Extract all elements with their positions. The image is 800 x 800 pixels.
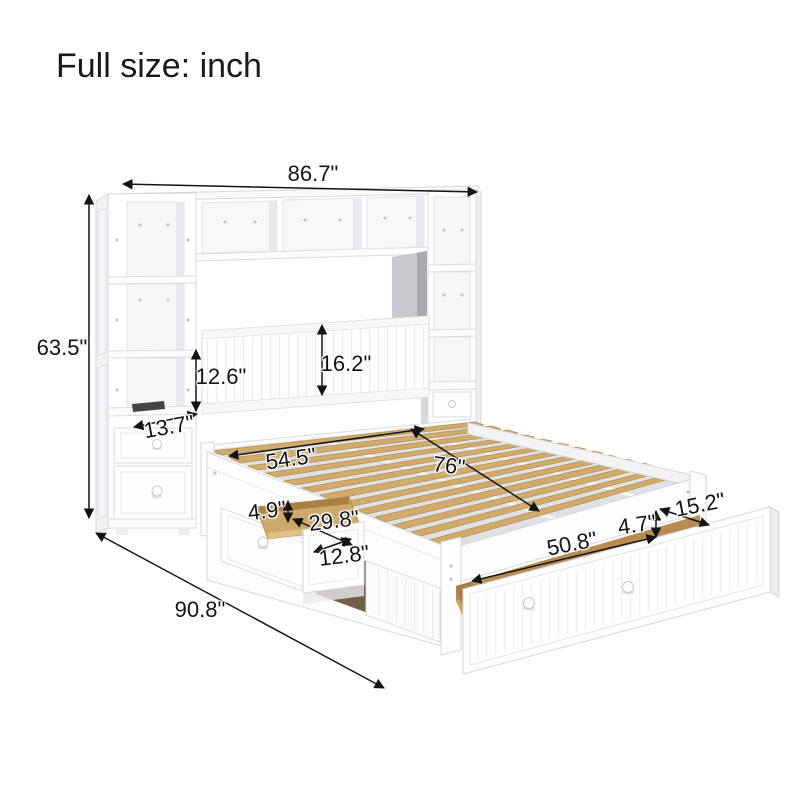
drawer-knob bbox=[152, 486, 162, 496]
drawer-knob bbox=[524, 598, 535, 609]
dim-label-overall-width: 86.7" bbox=[288, 161, 339, 187]
dim-label-overall-height: 63.5" bbox=[37, 335, 88, 361]
bookcase-bridge-cubbies bbox=[196, 196, 430, 261]
bed-diagram bbox=[0, 0, 800, 800]
dim-label-overall-depth: 90.8" bbox=[175, 597, 226, 623]
drawer-knob bbox=[258, 537, 268, 547]
dim-label-trundle-height: 4.7" bbox=[616, 509, 658, 540]
dim-label-bed-length: 76" bbox=[431, 451, 466, 481]
dim-label-shelf-opening-height: 12.6" bbox=[196, 364, 247, 390]
page-title: Full size: inch bbox=[56, 47, 262, 86]
dim-label-headboard-height: 16.2" bbox=[321, 351, 372, 377]
drawer-knob bbox=[449, 401, 456, 408]
dim-label-side-drawer-height: 4.9" bbox=[246, 496, 287, 526]
drawer-knob bbox=[623, 582, 634, 593]
left-storage-tower bbox=[96, 193, 196, 535]
dimension-diagram-page: Full size: inch 86.7" 63.5" 12.6" 16.2" … bbox=[0, 0, 800, 800]
